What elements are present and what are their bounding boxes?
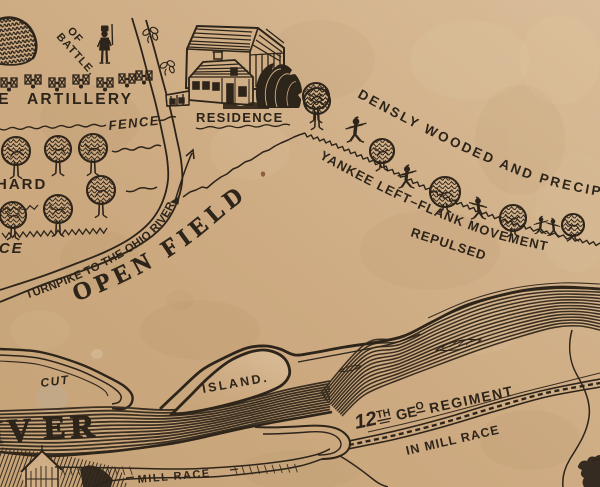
- svg-text:V: V: [7, 413, 33, 450]
- svg-text:NCE: NCE: [0, 240, 24, 257]
- svg-text:RESIDENCE: RESIDENCE: [196, 110, 284, 125]
- svg-text:E: E: [0, 91, 9, 108]
- svg-text:HARD: HARD: [0, 176, 47, 193]
- svg-text:E: E: [43, 410, 67, 447]
- svg-text:ARTILLERY: ARTILLERY: [27, 91, 133, 108]
- svg-text:R: R: [70, 409, 97, 446]
